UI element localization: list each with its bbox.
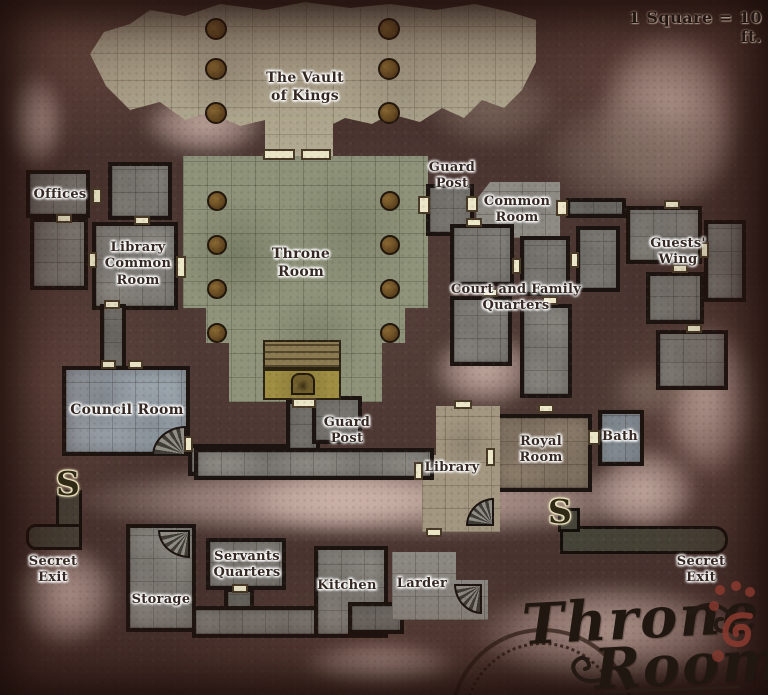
pillar-icon (205, 18, 227, 40)
dais-steps (263, 340, 341, 369)
room-guests-wing-4 (656, 330, 728, 390)
room-guests-wing-3 (646, 272, 704, 324)
label-library-common: Library Common Room (98, 240, 178, 289)
pillar-icon (207, 323, 227, 343)
label-common-room: Common Room (480, 194, 554, 227)
door-marker (556, 200, 568, 216)
door-marker (92, 188, 102, 204)
label-library: Library (412, 460, 492, 476)
door-marker (512, 258, 521, 274)
label-council: Council Room (67, 402, 187, 420)
dungeon-map: S S The Vault of Kings Offices Library C… (0, 0, 768, 695)
label-guests-wing: Guests' Wing (638, 236, 718, 269)
label-royal: Royal Room (506, 434, 576, 467)
swirl-decoration-icon (566, 650, 604, 686)
corridor-common-east (566, 198, 626, 218)
secret-door-marker: S (548, 492, 572, 531)
room-court-family-1 (450, 224, 514, 286)
corridor-guard-post-bar (194, 448, 434, 480)
pillar-icon (378, 58, 400, 80)
door-marker (104, 300, 120, 309)
pillar-icon (207, 235, 227, 255)
scale-note: 1 Square = 10 ft. (614, 8, 762, 46)
door-marker (301, 149, 331, 160)
door-marker (292, 398, 316, 408)
pillar-icon (207, 191, 227, 211)
pillar-icon (380, 323, 400, 343)
door-marker (686, 324, 702, 333)
door-marker (134, 216, 150, 225)
pillar-icon (205, 102, 227, 124)
secret-passage-se (560, 526, 728, 554)
label-storage: Storage (120, 592, 202, 608)
label-guard-post-south: Guard Post (317, 415, 377, 448)
label-larder: Larder (386, 576, 458, 592)
door-marker (232, 584, 248, 593)
pillar-icon (380, 235, 400, 255)
door-marker (454, 400, 472, 409)
secret-passage-sw (26, 524, 82, 550)
cave-floor-patch (300, 640, 460, 690)
room-office-annex-ne (108, 162, 172, 220)
door-marker (184, 436, 193, 452)
label-kitchen: Kitchen (306, 578, 388, 594)
pillar-icon (378, 18, 400, 40)
label-guard-post-north: Guard Post (422, 160, 482, 193)
room-office-annex-sw (30, 218, 88, 290)
secret-door-marker: S (56, 464, 80, 503)
door-marker (538, 404, 554, 413)
pillar-icon (380, 191, 400, 211)
label-vault: The Vault of Kings (245, 70, 365, 105)
door-marker (263, 149, 295, 160)
label-court-family: Court and Family Quarters (446, 282, 586, 315)
door-marker (128, 360, 143, 369)
pillar-icon (378, 102, 400, 124)
door-marker (466, 196, 478, 212)
pillar-icon (207, 279, 227, 299)
throne-icon (291, 373, 315, 395)
door-marker (56, 214, 72, 223)
door-marker (418, 196, 430, 214)
pillar-icon (205, 58, 227, 80)
door-marker (101, 360, 116, 369)
room-court-family-4 (520, 304, 572, 398)
red-spiral-decoration-icon (706, 582, 764, 666)
door-marker (664, 200, 680, 209)
label-secret-exit-sw: Secret Exit (22, 554, 84, 587)
label-servants: Servants Quarters (206, 549, 288, 582)
door-marker (570, 252, 579, 268)
corridor-service-bottom (192, 606, 322, 638)
label-bath: Bath (594, 429, 646, 445)
label-throne: Throne Room (261, 246, 341, 281)
label-offices: Offices (28, 187, 92, 203)
door-marker (88, 252, 97, 268)
cave-floor-patch (5, 70, 65, 170)
pillar-icon (380, 279, 400, 299)
door-marker (426, 528, 442, 537)
